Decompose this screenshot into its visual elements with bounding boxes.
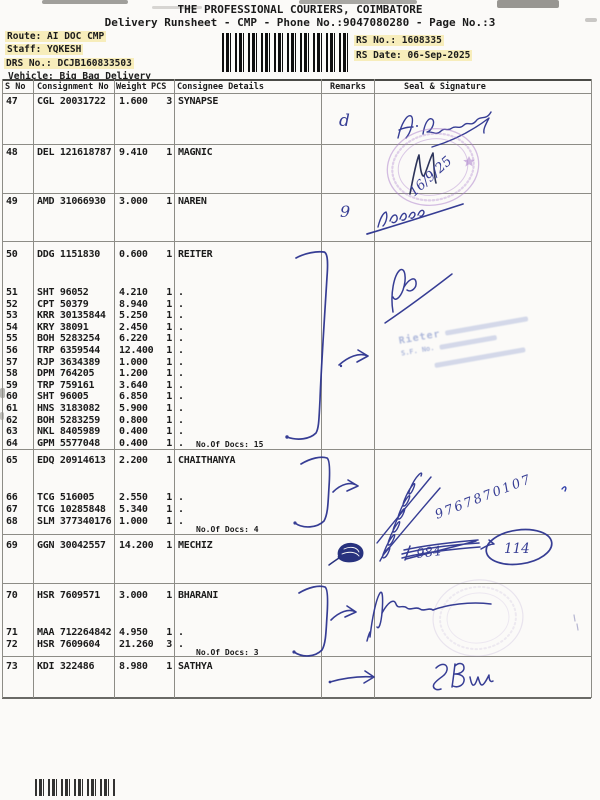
cell-sno: 52	[6, 299, 17, 310]
docs-count-note: No.Of Docs: 3	[196, 648, 259, 657]
cell-pcs: 1	[154, 426, 172, 437]
cell-sno: 51	[6, 287, 17, 298]
cell-pcs: 1	[154, 345, 172, 356]
table-row: 59TRP 7591613.6401.	[2, 380, 591, 391]
table-row: 62BOH 52832590.8001.	[2, 415, 591, 426]
cell-cn: HSR 7609571	[37, 590, 100, 601]
cell-pcs: 1	[154, 391, 172, 402]
cell-wt: 8.980	[119, 661, 148, 672]
cell-name: MAGNIC	[178, 147, 212, 158]
table-row: 51SHT 960524.2101.	[2, 287, 591, 298]
cell-name: .	[178, 504, 184, 515]
cell-wt: 2.200	[119, 455, 148, 466]
cell-name: .	[178, 516, 184, 527]
table-row: 68SLM 3773401761.0001.	[2, 516, 591, 527]
table-bottom-border	[2, 697, 591, 699]
cell-wt: 3.000	[119, 590, 148, 601]
cell-name: CHAITHANYA	[178, 455, 235, 466]
row-separator	[2, 583, 591, 584]
cell-name: SATHYA	[178, 661, 212, 672]
cell-cn: TCG 10285848	[37, 504, 106, 515]
table-row: 61HNS 31830825.9001.	[2, 403, 591, 414]
cell-pcs: 1	[154, 299, 172, 310]
cell-pcs: 1	[154, 196, 172, 207]
cell-pcs: 1	[154, 590, 172, 601]
row-separator	[2, 241, 591, 242]
cell-wt: 2.550	[119, 492, 148, 503]
table-row: 49AMD 310669303.0001NAREN	[2, 196, 591, 207]
cell-name: .	[178, 492, 184, 503]
cell-pcs: 1	[154, 368, 172, 379]
cell-sno: 49	[6, 196, 17, 207]
cell-sno: 57	[6, 357, 17, 368]
table-row: 70HSR 76095713.0001BHARANI	[2, 590, 591, 601]
cell-pcs: 3	[154, 639, 172, 650]
cell-cn: DPM 764205	[37, 368, 94, 379]
cell-cn: MAA 712264842	[37, 627, 111, 638]
cell-pcs: 1	[154, 661, 172, 672]
cell-cn: SLM 377340176	[37, 516, 111, 527]
cell-pcs: 1	[154, 415, 172, 426]
table-row: 66TCG 5160052.5501.	[2, 492, 591, 503]
docs-count-note: No.Of Docs: 4	[196, 525, 259, 534]
cell-sno: 65	[6, 455, 17, 466]
cell-sno: 50	[6, 249, 17, 260]
cell-wt: 5.900	[119, 403, 148, 414]
cell-sno: 72	[6, 639, 17, 650]
cell-pcs: 1	[154, 403, 172, 414]
cell-wt: 12.400	[119, 345, 153, 356]
cell-wt: 1.600	[119, 96, 148, 107]
cell-name: .	[178, 345, 184, 356]
column-header-pcs: PCS	[151, 82, 166, 92]
cell-pcs: 1	[154, 504, 172, 515]
cell-sno: 67	[6, 504, 17, 515]
cell-cn: CGL 20031722	[37, 96, 106, 107]
cell-cn: KRY 38091	[37, 322, 89, 333]
row-separator	[2, 449, 591, 450]
cell-wt: 0.800	[119, 415, 148, 426]
cell-wt: 5.340	[119, 504, 148, 515]
cell-wt: 1.200	[119, 368, 148, 379]
row-separator	[2, 193, 591, 194]
cell-sno: 64	[6, 438, 17, 449]
cell-wt: 14.200	[119, 540, 153, 551]
cell-name: REITER	[178, 249, 212, 260]
column-header-consignment-no: Consignment No	[37, 82, 109, 92]
cell-sno: 73	[6, 661, 17, 672]
cell-wt: 1.000	[119, 357, 148, 368]
cell-cn: GGN 30042557	[37, 540, 106, 551]
table-row: 63NKL 84059890.4001.	[2, 426, 591, 437]
cell-wt: 0.600	[119, 249, 148, 260]
cell-cn: HNS 3183082	[37, 403, 100, 414]
cell-sno: 71	[6, 627, 17, 638]
cell-wt: 5.250	[119, 310, 148, 321]
cell-sno: 58	[6, 368, 17, 379]
cell-sno: 61	[6, 403, 17, 414]
table-row: 71MAA 7122648424.9501.	[2, 627, 591, 638]
cell-pcs: 1	[154, 516, 172, 527]
column-header-consignee-details: Consignee Details	[177, 82, 264, 92]
cell-pcs: 1	[154, 627, 172, 638]
cell-cn: SHT 96052	[37, 287, 89, 298]
cell-name: .	[178, 357, 184, 368]
cell-sno: 54	[6, 322, 17, 333]
table-row: 65EDQ 209146132.2001CHAITHANYA	[2, 455, 591, 466]
cell-wt: 4.950	[119, 627, 148, 638]
cell-cn: EDQ 20914613	[37, 455, 106, 466]
cell-pcs: 3	[154, 96, 172, 107]
cell-wt: 8.940	[119, 299, 148, 310]
cell-wt: 4.210	[119, 287, 148, 298]
cell-wt: 6.850	[119, 391, 148, 402]
cell-name: .	[178, 415, 184, 426]
cell-name: .	[178, 426, 184, 437]
cell-sno: 69	[6, 540, 17, 551]
cell-pcs: 1	[154, 147, 172, 158]
cell-cn: DEL 121618787	[37, 147, 111, 158]
cell-cn: HSR 7609604	[37, 639, 100, 650]
cell-name: .	[178, 299, 184, 310]
cell-name: NAREN	[178, 196, 207, 207]
cell-wt: 3.640	[119, 380, 148, 391]
cell-pcs: 1	[154, 492, 172, 503]
cell-wt: 0.400	[119, 426, 148, 437]
cell-wt: 3.000	[119, 196, 148, 207]
row-separator	[2, 93, 591, 94]
cell-wt: 6.220	[119, 333, 148, 344]
cell-wt: 1.000	[119, 516, 148, 527]
cell-sno: 62	[6, 415, 17, 426]
cell-name: .	[178, 368, 184, 379]
cell-cn: GPM 5577048	[37, 438, 100, 449]
cell-name: .	[178, 310, 184, 321]
cell-name: .	[178, 287, 184, 298]
row-separator	[2, 144, 591, 145]
cell-wt: 0.400	[119, 438, 148, 449]
cell-cn: KDI 322486	[37, 661, 94, 672]
table-row: 50DDG 11518300.6001REITER	[2, 249, 591, 260]
cell-sno: 68	[6, 516, 17, 527]
cell-name: .	[178, 403, 184, 414]
cell-wt: 9.410	[119, 147, 148, 158]
cell-pcs: 1	[154, 249, 172, 260]
cell-sno: 55	[6, 333, 17, 344]
cell-pcs: 1	[154, 333, 172, 344]
cell-name: SYNAPSE	[178, 96, 218, 107]
table-row: 69GGN 3004255714.2001MECHIZ	[2, 540, 591, 551]
table-row: 67TCG 102858485.3401.	[2, 504, 591, 515]
cell-sno: 66	[6, 492, 17, 503]
scanned-delivery-runsheet: THE PROFESSIONAL COURIERS, COIMBATORE De…	[0, 0, 600, 800]
cell-name: BHARANI	[178, 590, 218, 601]
footer-barcode	[35, 779, 115, 796]
table-row: 72HSR 760960421.2603.	[2, 639, 591, 650]
table-row: 73KDI 3224868.9801SATHYA	[2, 661, 591, 672]
table-row: 52CPT 503798.9401.	[2, 299, 591, 310]
cell-pcs: 1	[154, 438, 172, 449]
table-row: 48DEL 1216187879.4101MAGNIC	[2, 147, 591, 158]
cell-sno: 60	[6, 391, 17, 402]
cell-cn: BOH 5283254	[37, 333, 100, 344]
cell-sno: 53	[6, 310, 17, 321]
column-header-s-no: S No	[5, 82, 25, 92]
cell-name: MECHIZ	[178, 540, 212, 551]
cell-cn: DDG 1151830	[37, 249, 100, 260]
cell-name: .	[178, 438, 184, 449]
cell-name: .	[178, 333, 184, 344]
cell-cn: BOH 5283259	[37, 415, 100, 426]
cell-cn: KRR 30135844	[37, 310, 106, 321]
runsheet-table: S NoConsignment NoWeightPCSConsignee Det…	[0, 0, 600, 800]
cell-name: .	[178, 380, 184, 391]
cell-pcs: 1	[154, 357, 172, 368]
cell-wt: 21.260	[119, 639, 153, 650]
cell-pcs: 1	[154, 380, 172, 391]
cell-sno: 70	[6, 590, 17, 601]
cell-cn: AMD 31066930	[37, 196, 106, 207]
row-separator	[2, 534, 591, 535]
table-top-border	[2, 79, 591, 81]
cell-cn: TCG 516005	[37, 492, 94, 503]
cell-name: .	[178, 322, 184, 333]
docs-count-note: No.Of Docs: 15	[196, 440, 263, 449]
cell-pcs: 1	[154, 287, 172, 298]
cell-cn: CPT 50379	[37, 299, 89, 310]
cell-sno: 47	[6, 96, 17, 107]
table-row: 60SHT 960056.8501.	[2, 391, 591, 402]
column-header-remarks: Remarks	[330, 82, 366, 92]
cell-pcs: 1	[154, 540, 172, 551]
cell-sno: 56	[6, 345, 17, 356]
cell-sno: 63	[6, 426, 17, 437]
cell-cn: TRP 6359544	[37, 345, 100, 356]
cell-cn: SHT 96005	[37, 391, 89, 402]
table-row: 64GPM 55770480.4001.	[2, 438, 591, 449]
cell-cn: TRP 759161	[37, 380, 94, 391]
cell-wt: 2.450	[119, 322, 148, 333]
cell-cn: RJP 3634389	[37, 357, 100, 368]
cell-cn: NKL 8405989	[37, 426, 100, 437]
table-row: 47CGL 200317221.6003SYNAPSE	[2, 96, 591, 107]
column-header-seal-signature: Seal & Signature	[404, 82, 486, 92]
cell-sno: 59	[6, 380, 17, 391]
column-header-weight: Weight	[116, 82, 147, 92]
cell-name: .	[178, 391, 184, 402]
cell-sno: 48	[6, 147, 17, 158]
cell-name: .	[178, 627, 184, 638]
cell-pcs: 1	[154, 322, 172, 333]
cell-pcs: 1	[154, 310, 172, 321]
cell-pcs: 1	[154, 455, 172, 466]
column-separator	[591, 79, 592, 698]
row-separator	[2, 656, 591, 657]
cell-name: .	[178, 639, 184, 650]
